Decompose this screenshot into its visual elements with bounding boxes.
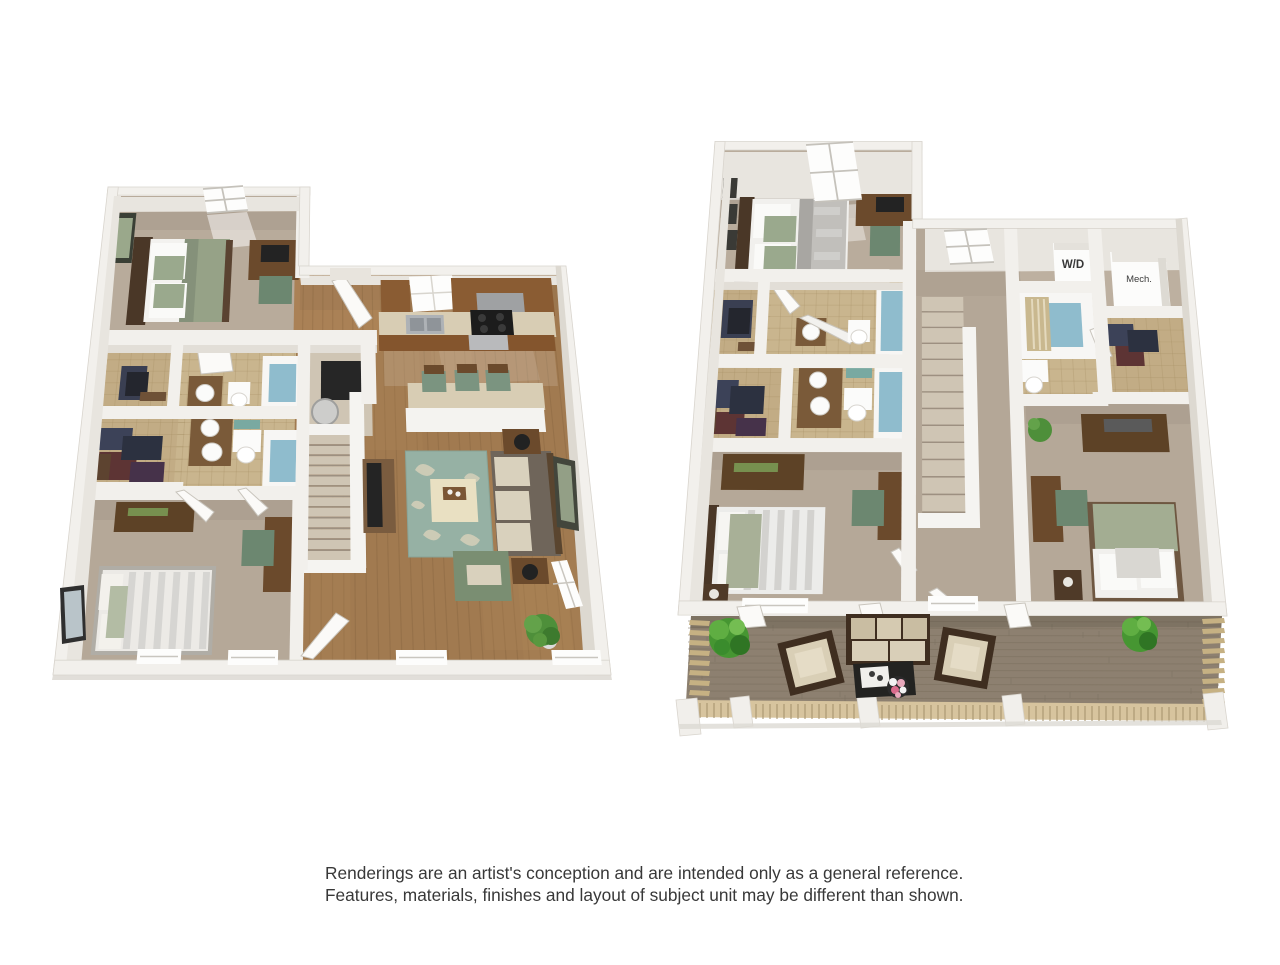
svg-text:W/D: W/D [1062, 259, 1084, 271]
svg-text:Mech.: Mech. [1126, 274, 1152, 285]
